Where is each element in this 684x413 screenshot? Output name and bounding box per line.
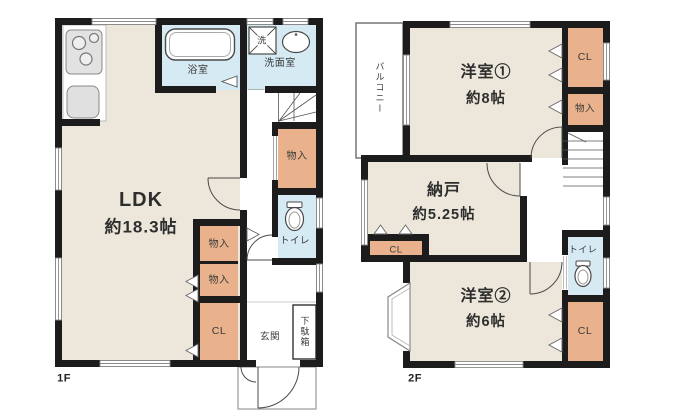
label-storeroom-area: 約5.25帖 [412, 208, 475, 223]
label-bedroom1-name: 洋室① [460, 65, 511, 81]
bathtub-icon [166, 29, 235, 60]
label-closet2-2f: CL [578, 326, 592, 337]
label-toilet-1f: トイレ [280, 236, 310, 246]
label-bedroom1-area: 約8帖 [466, 92, 506, 107]
label-storeroom-closet: CL [389, 245, 402, 255]
label-storage-2f: 物入 [575, 104, 595, 114]
label-closet-1f: CL [212, 326, 226, 337]
label-floor-1f: 1F [57, 374, 71, 385]
toilet-icon-2f [575, 261, 591, 287]
label-entrance: 玄関 [260, 332, 280, 342]
label-shoe-cabinet: 下駄箱 [300, 316, 309, 348]
label-floor-2f: 2F [408, 374, 422, 385]
floorplan-canvas: LDK 約18.3帖 浴室 洗面室 洗 物入 トイレ 物入 物入 CL 玄関 下… [0, 0, 684, 413]
label-bedroom2-area: 約6帖 [466, 315, 506, 330]
stove-icon [66, 30, 102, 74]
floor1-plan [55, 18, 323, 409]
label-washing-machine: 洗 [257, 37, 267, 46]
label-ldk-name: LDK [119, 190, 163, 210]
label-bathroom: 浴室 [188, 66, 209, 76]
label-storeroom-name: 納戸 [427, 183, 461, 199]
label-balcony: バルコニー [375, 62, 384, 115]
label-storage-upper: 物入 [209, 240, 230, 250]
label-washroom: 洗面室 [264, 59, 296, 69]
washbasin-icon [283, 32, 310, 53]
label-ldk-area: 約18.3帖 [104, 219, 177, 236]
kitchen-sink-icon [67, 86, 99, 118]
hall-storage-slide-door [272, 136, 278, 180]
toilet-icon-1f [286, 202, 304, 231]
label-toilet-2f: トイレ [569, 246, 598, 255]
label-hall-storage: 物入 [287, 152, 308, 162]
label-storage-lower: 物入 [209, 276, 230, 286]
label-bedroom2-name: 洋室② [460, 289, 511, 305]
label-closet1-2f: CL [578, 52, 592, 63]
entrance-porch [238, 367, 316, 409]
room-bedroom2 [410, 262, 562, 361]
